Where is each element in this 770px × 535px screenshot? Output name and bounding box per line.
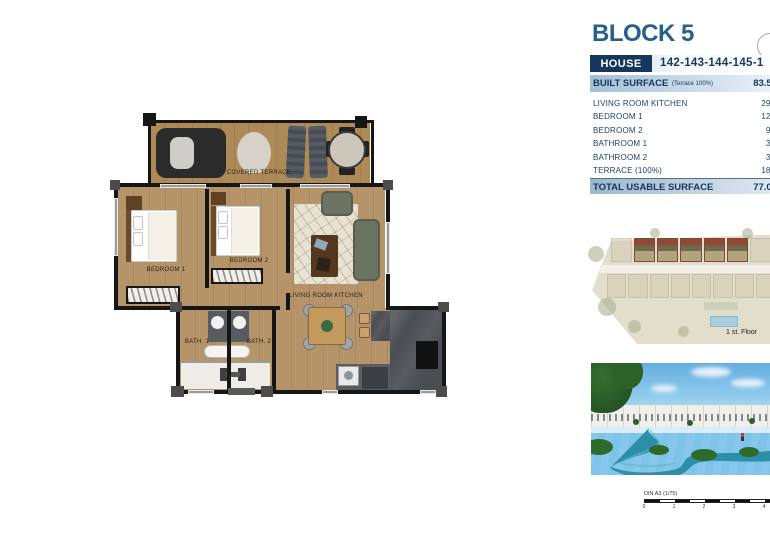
built-surface-value: 83.50 (753, 78, 770, 89)
table-plant (321, 320, 333, 332)
table-row: BATHROOM 2 3.5 (590, 151, 770, 164)
wardrobe-cabinet (126, 196, 142, 210)
sofa (353, 219, 380, 281)
row-value: 9.7 (766, 126, 770, 135)
row-value: 18.0 (761, 166, 770, 175)
table-row: LIVING ROOM KITCHEN 29.5 (590, 97, 770, 110)
wall-segment (148, 120, 151, 186)
floor-indicator: 1 st. Floor (726, 329, 757, 336)
brochure-page: COVERED TERRACE BEDROOM 1 BEDROOM 2 LIVI… (0, 0, 770, 535)
terrace-post (355, 116, 367, 128)
exterior-render-photo (591, 363, 770, 475)
scale-tick: 2 (703, 504, 706, 510)
wall-segment (386, 306, 446, 310)
wall-post (261, 386, 273, 397)
window (420, 390, 436, 394)
site-pool (710, 316, 738, 327)
site-unit (713, 274, 732, 298)
bed1-blanket (148, 212, 176, 260)
wall-segment (272, 310, 276, 392)
site-building-row-bottom (606, 274, 770, 298)
wall-segment (176, 306, 180, 394)
bush (649, 445, 669, 455)
bath2-label: BATH. 2 (247, 339, 271, 345)
site-tree (628, 320, 641, 333)
sink-bowl (233, 316, 246, 329)
row-value: 12.5 (761, 112, 770, 121)
scale-tick: 3 (733, 504, 736, 510)
scale-label: DIN A3 (1/75) (644, 491, 677, 497)
site-unit (650, 274, 669, 298)
wall-segment (286, 189, 290, 273)
terrace-post (143, 113, 156, 126)
wall-post (170, 302, 182, 312)
row-label: BEDROOM 1 (593, 112, 643, 121)
wall-segment (205, 189, 209, 288)
site-unit (692, 274, 711, 298)
wall-post (383, 180, 393, 190)
wall-segment (442, 306, 446, 394)
site-unit (735, 274, 754, 298)
row-value: 29.5 (761, 99, 770, 108)
row-value: 3.5 (766, 153, 770, 162)
total-surface-value: 77.00 (753, 182, 770, 193)
site-plan: 1 st. Floor (592, 228, 770, 346)
scale-strip (644, 499, 770, 503)
window (322, 390, 338, 394)
armchair (321, 191, 353, 216)
built-surface-row: BUILT SURFACE (Terrace 100%) 83.50 (590, 75, 770, 92)
coffee-table-item (316, 257, 331, 272)
site-unit (607, 274, 626, 298)
page-title: BLOCK 5 (592, 20, 694, 48)
site-unit (671, 274, 690, 298)
row-label: BATHROOM 1 (593, 139, 647, 148)
scale-tick: 4 (763, 504, 766, 510)
house-header: HOUSE 142-143-144-145-1 (590, 55, 770, 72)
bed2-blanket (231, 208, 258, 254)
site-tree (678, 326, 689, 337)
wall-segment (227, 310, 231, 392)
scale-tick: 1 (673, 504, 676, 510)
scale-tick: 0 (643, 504, 646, 510)
site-unit-highlighted (704, 238, 725, 262)
bush (739, 447, 759, 457)
window (240, 184, 272, 188)
site-unit-highlighted (727, 238, 748, 262)
golfer-figure (741, 437, 744, 441)
entry-door (228, 388, 255, 395)
site-unit (611, 238, 632, 262)
bath1-label: BATH. 1 (185, 339, 209, 345)
site-unit-highlighted (680, 238, 701, 262)
wall-post (438, 302, 449, 312)
terrace-label: COVERED TERRACE (227, 170, 291, 176)
kitchen-stool (359, 313, 370, 324)
pillow (133, 232, 143, 246)
window (188, 390, 214, 394)
built-surface-label: BUILT SURFACE (593, 78, 668, 89)
table-row: BEDROOM 1 12.5 (590, 110, 770, 123)
site-tree (650, 228, 660, 238)
bedroom1-label: BEDROOM 1 (147, 267, 186, 273)
row-label: TERRACE (100%) (593, 166, 662, 175)
table-row: BATHROOM 1 3.8 (590, 137, 770, 150)
row-label: LIVING ROOM KITCHEN (593, 99, 687, 108)
site-unit-highlighted (657, 238, 678, 262)
site-unit (628, 274, 647, 298)
wall-post (436, 386, 447, 397)
kitchen-island (371, 311, 390, 341)
wall-segment (114, 306, 210, 310)
bedroom2-label: BEDROOM 2 (230, 258, 269, 264)
wall-segment (371, 120, 374, 186)
window (114, 198, 118, 256)
table-row: BEDROOM 2 9.7 (590, 124, 770, 137)
wall-post (171, 386, 184, 397)
wall-segment (176, 390, 446, 394)
site-amenity (704, 302, 738, 310)
surface-table: LIVING ROOM KITCHEN 29.5 BEDROOM 1 12.5 … (590, 97, 770, 178)
pillow (218, 211, 228, 224)
site-unit (750, 238, 770, 262)
built-surface-note: (Terrace 100%) (672, 81, 713, 87)
kitchen-stool (359, 327, 370, 338)
terrace-table (328, 131, 366, 169)
kitchen-stove (362, 367, 388, 389)
wall-segment (205, 306, 280, 310)
site-tree (598, 298, 616, 316)
window (386, 222, 390, 274)
wall-segment (148, 120, 374, 123)
wardrobe-cabinet (211, 192, 226, 205)
scale-bar: DIN A3 (1/75) 0 1 2 3 4 (644, 491, 770, 513)
site-unit-highlighted (634, 238, 655, 262)
total-surface-label: TOTAL USABLE SURFACE (593, 182, 713, 193)
terrace-rug (237, 132, 271, 174)
site-unit (756, 274, 770, 298)
living-label: LIVING ROOM KITCHEN (289, 293, 363, 299)
row-label: BATHROOM 2 (593, 153, 647, 162)
total-surface-row: TOTAL USABLE SURFACE 77.00 (590, 178, 770, 194)
pillow (218, 226, 228, 239)
wall-post (110, 180, 120, 190)
terrace-sofa-cushion (170, 137, 194, 169)
house-numbers: 142-143-144-145-1 (660, 55, 764, 72)
sink-faucet (344, 371, 353, 380)
row-label: BEDROOM 2 (593, 126, 643, 135)
window (160, 184, 206, 188)
window (300, 184, 350, 188)
row-value: 3.8 (766, 139, 770, 148)
pillow (133, 216, 143, 230)
sun-lounger (308, 126, 328, 179)
site-road (600, 265, 770, 273)
sink-bowl (211, 316, 224, 329)
kitchen-appliance (416, 341, 438, 369)
bedroom2-wardrobe (211, 268, 263, 284)
bush (691, 449, 717, 461)
house-label: HOUSE (590, 55, 652, 72)
site-building-row-top (610, 238, 770, 262)
site-tree (588, 246, 604, 262)
table-row: TERRACE (100%) 18.0 (590, 164, 770, 177)
